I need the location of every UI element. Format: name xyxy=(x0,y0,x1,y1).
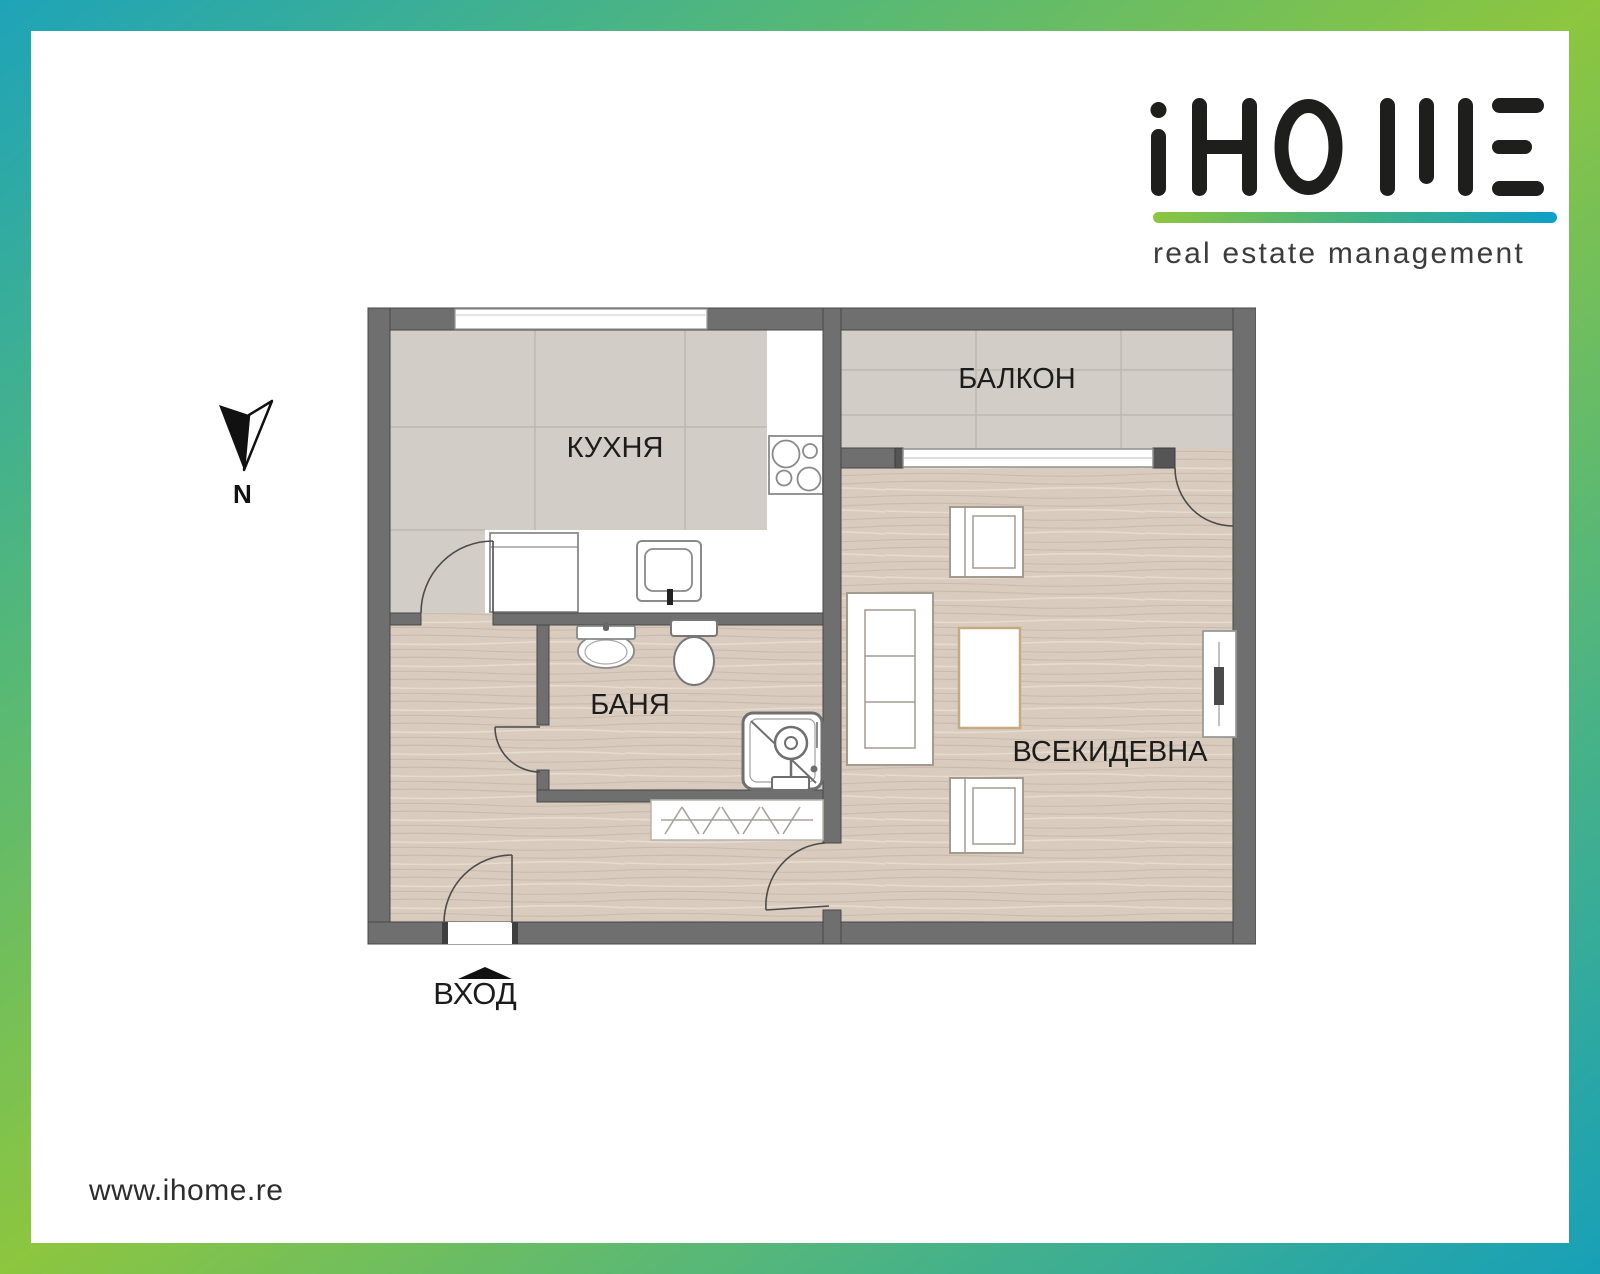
north-indicator: N xyxy=(211,393,281,513)
north-label: N xyxy=(233,479,252,509)
kitchen-label: КУХНЯ xyxy=(567,432,664,464)
balcony-window xyxy=(903,449,1153,467)
coffee-table xyxy=(959,628,1020,728)
flyer-page: iHOME xyxy=(0,0,1600,1274)
brand-tagline: real estate management xyxy=(1153,237,1525,270)
floor-plan: КУХНЯ БАЛКОН БАНЯ ВСЕКИДЕВНА ВХОД xyxy=(365,302,1256,1012)
shower-icon xyxy=(743,713,822,790)
tv-unit xyxy=(1203,631,1236,737)
kitchen-window xyxy=(455,309,707,329)
kitchen-sink-icon xyxy=(637,541,701,605)
north-arrow-icon xyxy=(219,401,272,470)
armchair xyxy=(950,778,1023,853)
balcony-label: БАЛКОН xyxy=(958,363,1075,395)
bathroom-label: БАНЯ xyxy=(590,689,670,721)
toilet-icon xyxy=(671,620,717,685)
sofa xyxy=(847,593,933,765)
stove-icon xyxy=(769,436,823,494)
entrance-label: ВХОД xyxy=(433,976,516,1011)
brand-underline xyxy=(1153,212,1557,223)
flyer-canvas: iHOME xyxy=(31,31,1569,1243)
brand-wordmark xyxy=(1151,98,1545,196)
living-label: ВСЕКИДЕВНА xyxy=(1012,736,1208,768)
brand-logo: iHOME xyxy=(1134,91,1579,281)
entrance-opening xyxy=(448,922,512,944)
entrance-cap xyxy=(442,922,448,944)
cabinet xyxy=(490,533,578,612)
wardrobe-icon xyxy=(651,800,823,840)
website-url: www.ihome.re xyxy=(89,1174,283,1208)
bath-sink-icon xyxy=(577,622,635,668)
entrance-cap xyxy=(512,922,518,944)
armchair xyxy=(950,507,1023,577)
